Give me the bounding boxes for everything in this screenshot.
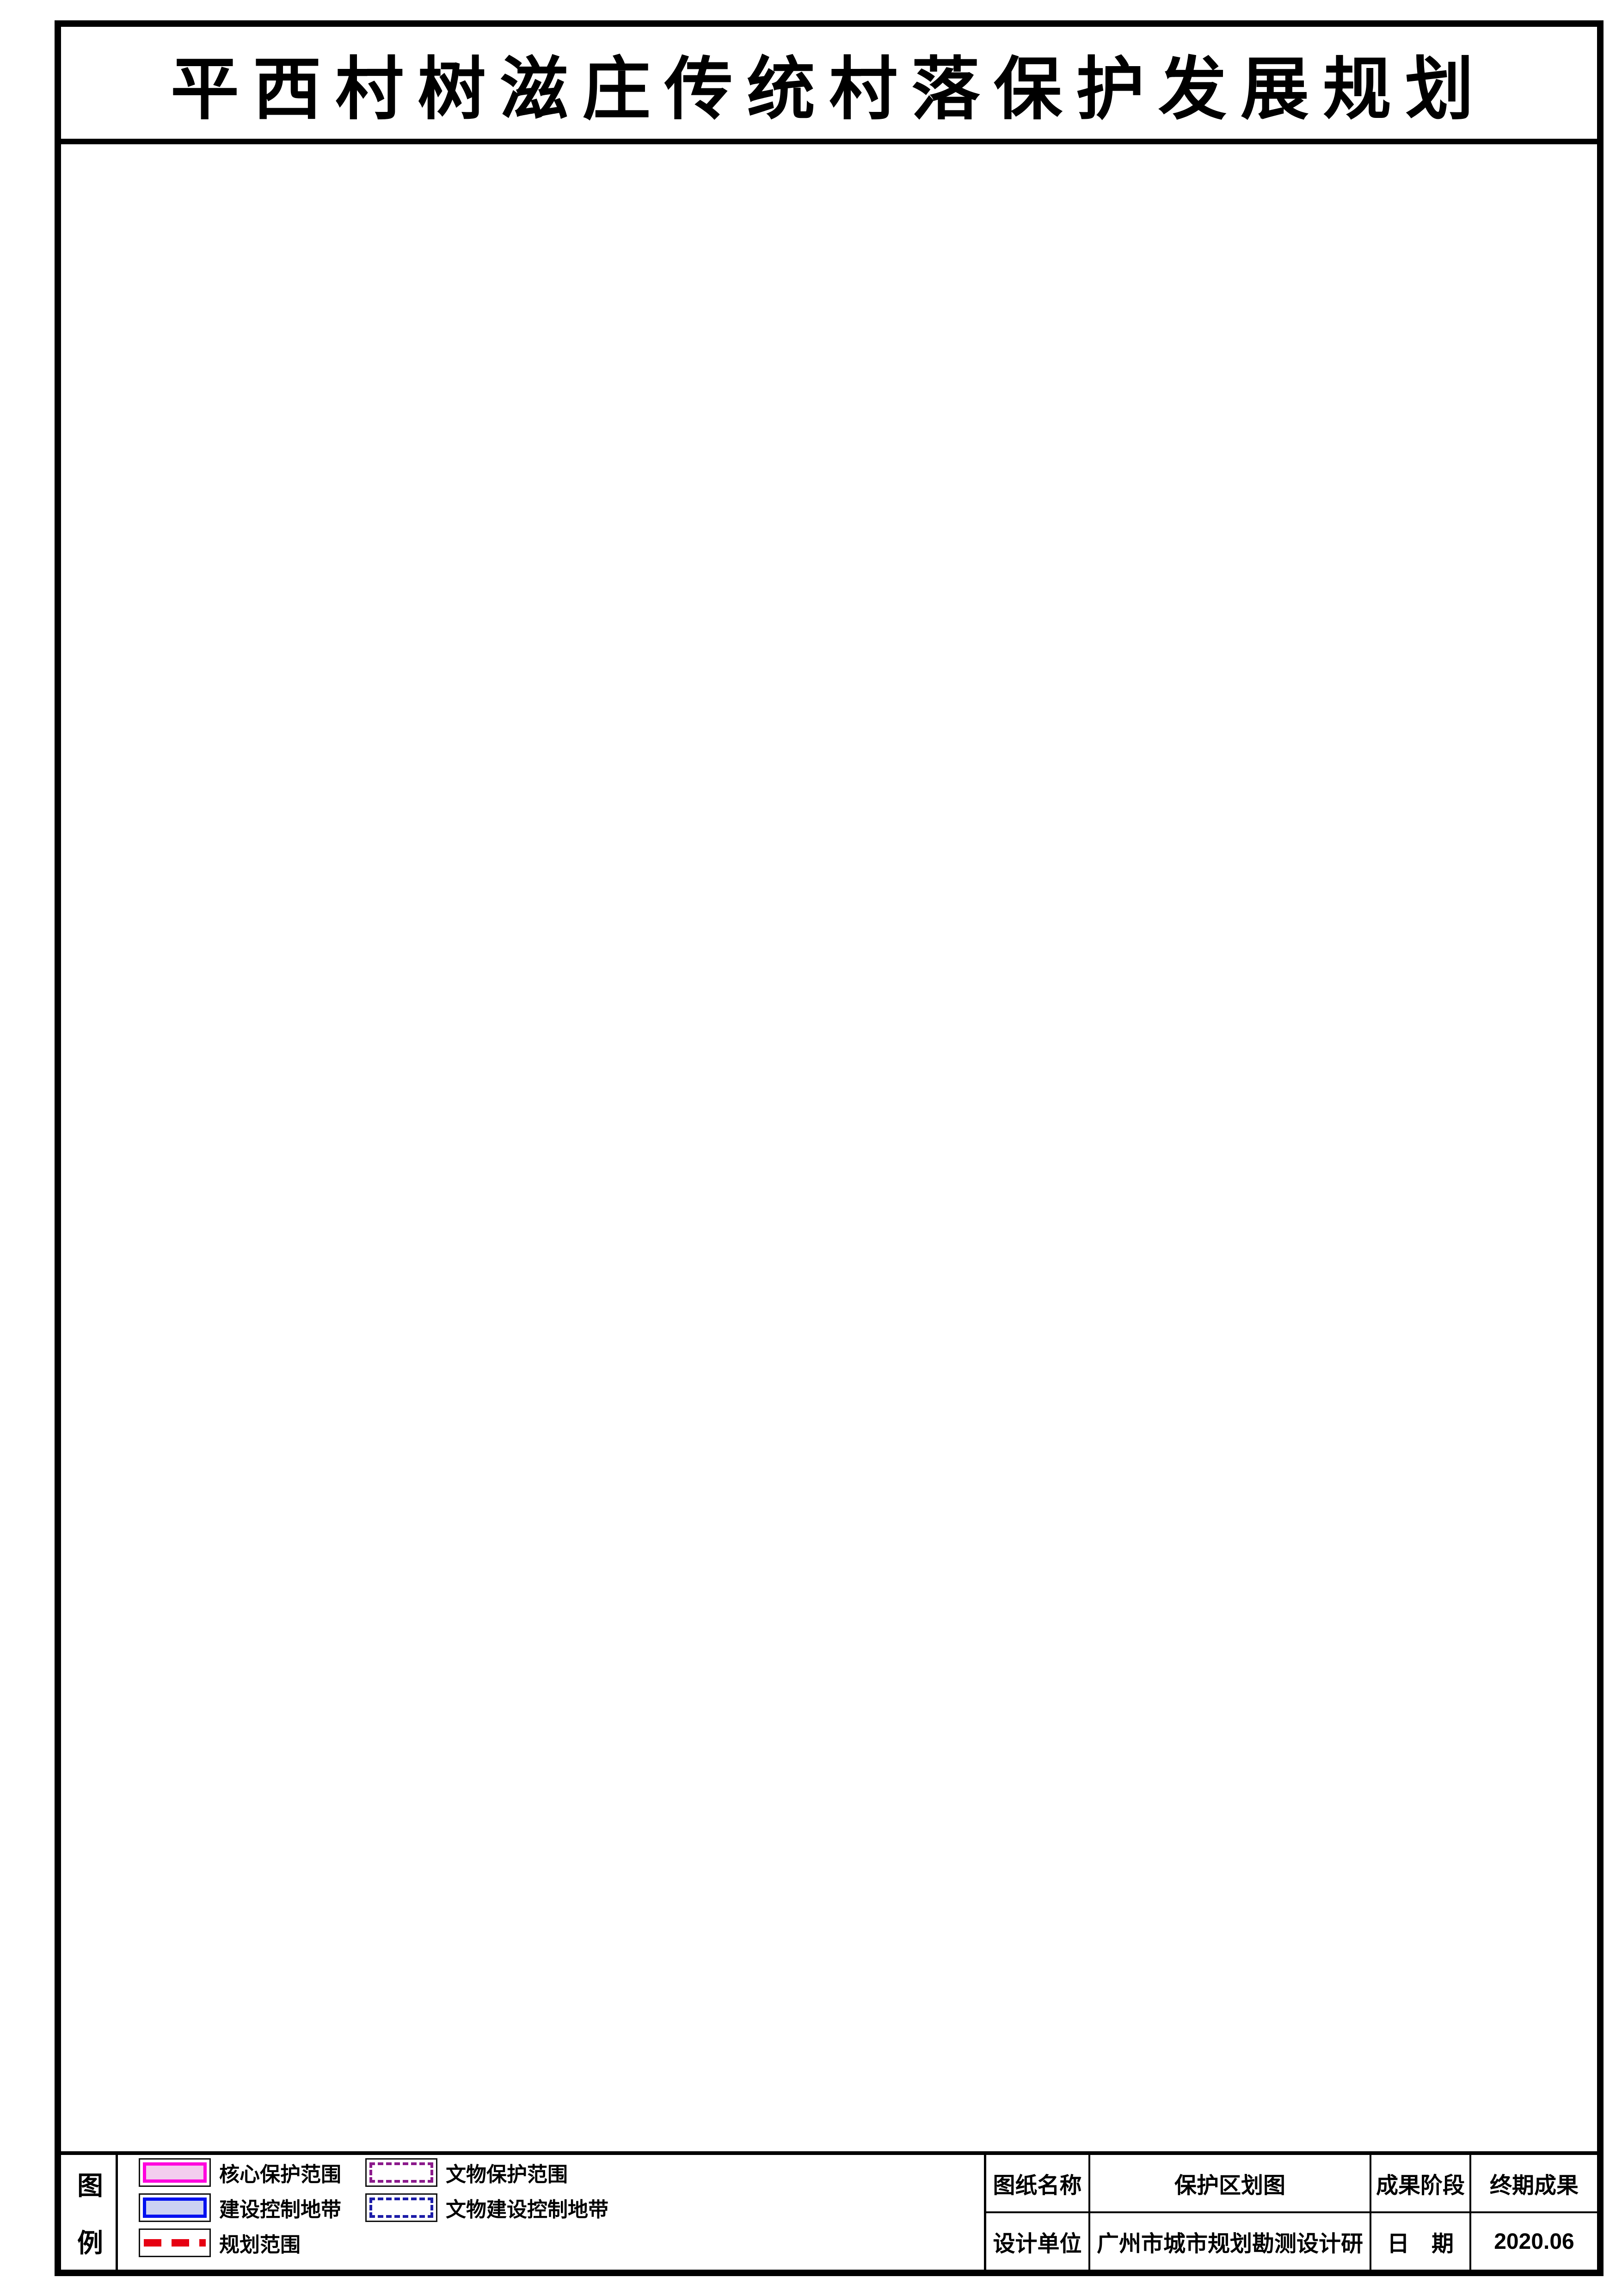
titleblock-designer-value: 广州市城市规划勘测设计研 (1090, 2213, 1370, 2270)
legend-item-label: 文物保护范围 (437, 2158, 568, 2187)
legend-divider (116, 2155, 118, 2270)
titleblock-date-value: 2020.06 (1471, 2213, 1597, 2270)
legend-swatch (365, 2193, 437, 2222)
legend-item: 规划范围 (139, 2229, 341, 2257)
titleblock-stage-label: 成果阶段 (1371, 2155, 1469, 2211)
legend-item-label: 建设控制地带 (211, 2193, 341, 2222)
sheet-title-band: 平西村树滋庄传统村落保护发展规划 (61, 27, 1597, 139)
legend-header-char: 图 (77, 2165, 103, 2203)
legend-item-label: 核心保护范围 (211, 2158, 341, 2187)
legend-item: 建设控制地带 (139, 2194, 341, 2222)
legend-item: 文物建设控制地带 (365, 2194, 608, 2222)
legend-swatch (139, 2228, 211, 2257)
legend-swatch (139, 2193, 211, 2222)
legend-item-label: 规划范围 (211, 2228, 301, 2258)
page-title: 平西村树滋庄传统村落保护发展规划 (171, 33, 1487, 133)
titleblock-drawing-name-label: 图纸名称 (986, 2155, 1088, 2211)
legend-item: 文物保护范围 (365, 2159, 608, 2186)
titleblock-designer-label: 设计单位 (986, 2213, 1088, 2270)
legend-column-2: 文物保护范围 文物建设控制地带 (365, 2159, 608, 2222)
titleblock-stage-value: 终期成果 (1471, 2155, 1597, 2211)
sheet-border (55, 20, 1604, 2276)
legend-header-char: 例 (77, 2222, 103, 2260)
legend-item: 核心保护范围 (139, 2159, 341, 2186)
map-bottom-separator (61, 2151, 1597, 2155)
legend-header: 图 例 (65, 2155, 116, 2270)
titleblock-drawing-name-value: 保护区划图 (1090, 2155, 1370, 2211)
legend-item-label: 文物建设控制地带 (437, 2193, 608, 2222)
title-separator (61, 139, 1597, 144)
legend-swatch (365, 2158, 437, 2187)
titleblock-date-label: 日 期 (1371, 2213, 1469, 2270)
legend-column-1: 核心保护范围 建设控制地带 规划范围 (139, 2159, 341, 2257)
legend-swatch (139, 2158, 211, 2187)
